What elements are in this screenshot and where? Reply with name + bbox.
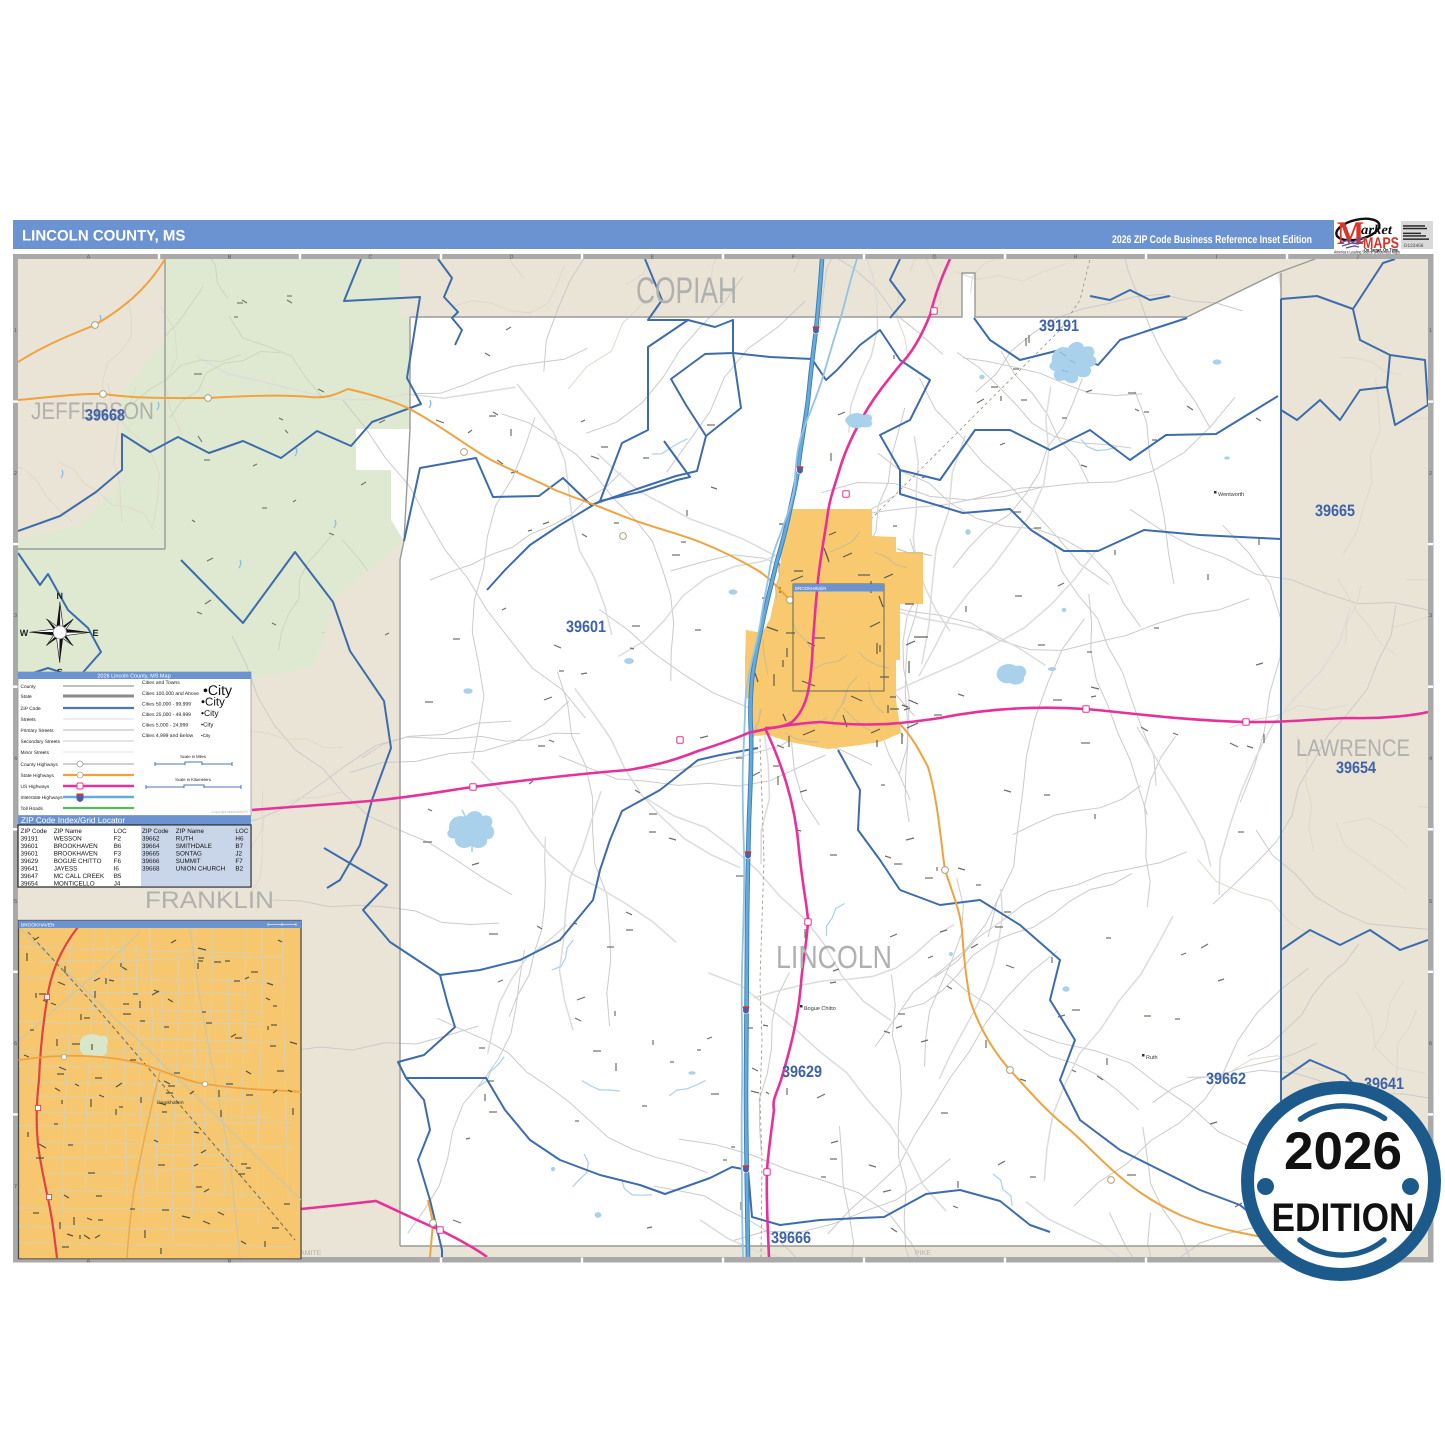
svg-text:2026 Lincoln County, MS Map: 2026 Lincoln County, MS Map bbox=[97, 674, 170, 680]
svg-text:3: 3 bbox=[1429, 613, 1432, 619]
svg-text:BOGUE CHITTO: BOGUE CHITTO bbox=[54, 858, 102, 865]
svg-text:State Highways: State Highways bbox=[21, 773, 55, 779]
svg-text:1: 1 bbox=[1429, 328, 1432, 334]
svg-text:F2: F2 bbox=[114, 836, 122, 843]
svg-text:F3: F3 bbox=[114, 851, 122, 858]
svg-text:FRANKLIN: FRANKLIN bbox=[145, 887, 274, 914]
svg-text:SONTAG: SONTAG bbox=[176, 851, 202, 858]
svg-text:MC CALL CREEK: MC CALL CREEK bbox=[54, 873, 105, 880]
svg-text:Cities 4,999 and Below: Cities 4,999 and Below bbox=[142, 733, 194, 739]
svg-text:WESSON: WESSON bbox=[54, 836, 82, 843]
svg-text:5: 5 bbox=[14, 899, 17, 905]
svg-text:39601: 39601 bbox=[21, 851, 39, 858]
svg-text:39191: 39191 bbox=[21, 836, 39, 843]
svg-text:LINCOLN: LINCOLN bbox=[776, 939, 892, 975]
svg-text:C: C bbox=[369, 255, 373, 261]
svg-text:Cities 100,000 and Above: Cities 100,000 and Above bbox=[142, 691, 199, 697]
svg-text:39654: 39654 bbox=[1336, 759, 1377, 777]
svg-text:B6: B6 bbox=[114, 843, 122, 850]
svg-text:D: D bbox=[510, 255, 514, 261]
svg-text:ZIP Code: ZIP Code bbox=[142, 828, 169, 835]
svg-text:39654: 39654 bbox=[21, 881, 39, 888]
svg-text:County Highways: County Highways bbox=[21, 762, 59, 768]
svg-text:EDITION: EDITION bbox=[1272, 1196, 1415, 1240]
svg-text:I6: I6 bbox=[114, 866, 120, 873]
svg-text:H: H bbox=[1074, 255, 1078, 261]
svg-text:G: G bbox=[932, 255, 936, 261]
svg-text:D123456: D123456 bbox=[1404, 243, 1424, 249]
svg-text:•City: •City bbox=[201, 708, 219, 718]
svg-text:Secondary Streets: Secondary Streets bbox=[21, 739, 61, 745]
svg-text:B5: B5 bbox=[114, 873, 122, 880]
svg-text:BROOKHAVEN: BROOKHAVEN bbox=[54, 851, 98, 858]
svg-text:RUTH: RUTH bbox=[176, 836, 194, 843]
svg-text:BROOKHAVEN: BROOKHAVEN bbox=[795, 586, 826, 591]
svg-text:LOC: LOC bbox=[235, 828, 248, 835]
svg-text:1: 1 bbox=[14, 328, 17, 334]
svg-text:7: 7 bbox=[14, 1184, 17, 1190]
svg-text:US Highways: US Highways bbox=[21, 784, 50, 790]
svg-text:39666: 39666 bbox=[771, 1229, 811, 1247]
svg-text:H6: H6 bbox=[235, 836, 244, 843]
svg-text:6: 6 bbox=[14, 1041, 17, 1047]
svg-text:Ruth: Ruth bbox=[1146, 1055, 1158, 1061]
svg-text:ZIP Name: ZIP Name bbox=[176, 828, 205, 835]
svg-text:America's Leading Source of Bu: America's Leading Source of Business Map… bbox=[1334, 250, 1401, 255]
svg-text:2: 2 bbox=[14, 471, 17, 477]
svg-text:39629: 39629 bbox=[782, 1063, 822, 1081]
svg-text:Copyright MarketMAPS: Copyright MarketMAPS bbox=[211, 810, 248, 814]
svg-text:Cities 5,000 - 24,999: Cities 5,000 - 24,999 bbox=[142, 723, 188, 729]
svg-text:2026: 2026 bbox=[1284, 1122, 1402, 1181]
svg-text:39666: 39666 bbox=[142, 858, 160, 865]
svg-text:PIKE: PIKE bbox=[915, 1250, 931, 1257]
svg-text:MONTICELLO: MONTICELLO bbox=[54, 881, 95, 888]
svg-text:E: E bbox=[92, 628, 98, 638]
svg-text:•City: •City bbox=[201, 733, 211, 738]
svg-text:2: 2 bbox=[1429, 471, 1432, 477]
svg-text:39662: 39662 bbox=[1206, 1070, 1246, 1088]
svg-text:County: County bbox=[21, 684, 37, 690]
svg-text:W: W bbox=[20, 628, 29, 638]
svg-text:•City: •City bbox=[201, 697, 225, 709]
svg-text:A: A bbox=[87, 255, 91, 261]
svg-text:F7: F7 bbox=[235, 858, 243, 865]
svg-text:Cities 50,000 - 99,999: Cities 50,000 - 99,999 bbox=[142, 702, 191, 708]
svg-text:Bogue Chitto: Bogue Chitto bbox=[804, 1006, 836, 1012]
svg-text:N: N bbox=[57, 591, 64, 601]
svg-text:39191: 39191 bbox=[1039, 317, 1079, 335]
svg-text:39668: 39668 bbox=[142, 866, 160, 873]
svg-text:Minor Streets: Minor Streets bbox=[21, 750, 50, 756]
svg-text:B: B bbox=[228, 1259, 232, 1265]
svg-text:Brookhaven: Brookhaven bbox=[157, 1100, 184, 1106]
svg-text:B2: B2 bbox=[235, 866, 243, 873]
svg-text:COPIAH: COPIAH bbox=[636, 270, 737, 311]
svg-text:J2: J2 bbox=[235, 851, 242, 858]
svg-text:Cities and Towns: Cities and Towns bbox=[142, 680, 180, 686]
svg-text:AMITE: AMITE bbox=[300, 1250, 322, 1257]
svg-text:Cities 25,000 - 49,999: Cities 25,000 - 49,999 bbox=[142, 712, 191, 718]
svg-text:39601: 39601 bbox=[566, 618, 606, 636]
svg-text:ZIP Name: ZIP Name bbox=[54, 828, 83, 835]
svg-text:Toll Roads: Toll Roads bbox=[21, 806, 44, 812]
svg-text:2026 ZIP Code Business Referen: 2026 ZIP Code Business Reference Inset E… bbox=[1112, 234, 1312, 246]
svg-text:F6: F6 bbox=[114, 858, 122, 865]
svg-text:B: B bbox=[228, 255, 232, 261]
svg-text:SUMMIT: SUMMIT bbox=[176, 858, 201, 865]
svg-text:J: J bbox=[1356, 255, 1359, 261]
svg-text:LINCOLN COUNTY, MS: LINCOLN COUNTY, MS bbox=[22, 228, 185, 245]
svg-text:BROOKHAVEN: BROOKHAVEN bbox=[21, 922, 55, 928]
svg-text:•City: •City bbox=[201, 722, 213, 729]
svg-text:39668: 39668 bbox=[85, 407, 125, 425]
svg-text:Wentworth: Wentworth bbox=[1218, 492, 1244, 498]
svg-text:39647: 39647 bbox=[21, 873, 39, 880]
svg-text:ZIP Code Index/Grid Locator: ZIP Code Index/Grid Locator bbox=[21, 816, 125, 825]
svg-text:LOC: LOC bbox=[114, 828, 127, 835]
svg-text:39662: 39662 bbox=[142, 836, 160, 843]
svg-text:39601: 39601 bbox=[21, 843, 39, 850]
svg-text:39665: 39665 bbox=[142, 851, 160, 858]
svg-text:SMITHDALE: SMITHDALE bbox=[176, 843, 212, 850]
svg-text:4: 4 bbox=[1429, 756, 1432, 762]
svg-text:BROOKHAVEN: BROOKHAVEN bbox=[54, 843, 98, 850]
svg-text:6: 6 bbox=[1429, 1041, 1432, 1047]
svg-text:39629: 39629 bbox=[21, 858, 39, 865]
svg-text:State: State bbox=[21, 694, 33, 700]
svg-text:ZIP Code: ZIP Code bbox=[21, 828, 48, 835]
svg-text:Primary Streets: Primary Streets bbox=[21, 728, 55, 734]
svg-text:Scale in Kilometers: Scale in Kilometers bbox=[175, 777, 211, 782]
svg-text:4: 4 bbox=[14, 756, 17, 762]
svg-text:UNION CHURCH: UNION CHURCH bbox=[176, 866, 226, 873]
svg-text:B7: B7 bbox=[235, 843, 243, 850]
svg-text:39665: 39665 bbox=[1315, 502, 1355, 520]
svg-text:5: 5 bbox=[1429, 899, 1432, 905]
svg-text:JAYESS: JAYESS bbox=[54, 866, 78, 873]
svg-text:ZIP Code: ZIP Code bbox=[21, 706, 42, 712]
svg-text:Interstate Highways: Interstate Highways bbox=[21, 795, 64, 801]
svg-text:LAWRENCE: LAWRENCE bbox=[1296, 735, 1410, 762]
svg-text:3: 3 bbox=[14, 613, 17, 619]
svg-text:A: A bbox=[87, 1259, 91, 1265]
svg-text:39641: 39641 bbox=[21, 866, 39, 873]
svg-text:39664: 39664 bbox=[142, 843, 160, 850]
svg-text:Scale in Miles: Scale in Miles bbox=[180, 754, 206, 759]
svg-text:J4: J4 bbox=[114, 881, 121, 888]
svg-text:Streets: Streets bbox=[21, 717, 37, 723]
svg-text:E: E bbox=[651, 255, 655, 261]
